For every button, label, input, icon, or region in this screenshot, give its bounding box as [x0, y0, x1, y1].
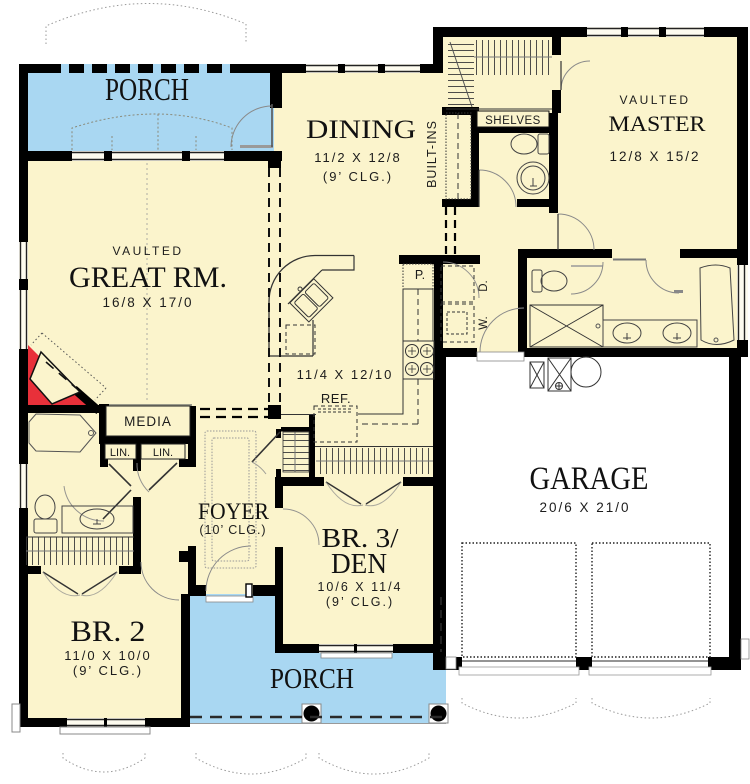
svg-text:SHELVES: SHELVES	[485, 115, 541, 127]
svg-text:20/6 X 21/0: 20/6 X 21/0	[539, 500, 630, 515]
svg-text:11/2 X 12/8: 11/2 X 12/8	[314, 150, 402, 165]
svg-text:MASTER: MASTER	[609, 111, 706, 136]
svg-text:D.: D.	[478, 280, 490, 292]
svg-text:GARAGE: GARAGE	[530, 461, 649, 497]
svg-text:MEDIA: MEDIA	[124, 414, 172, 429]
svg-text:(10’ CLG.): (10’ CLG.)	[199, 523, 266, 537]
svg-text:DINING: DINING	[306, 115, 416, 144]
svg-text:11/0 X 10/0: 11/0 X 10/0	[64, 648, 152, 663]
svg-text:REF.: REF.	[321, 391, 351, 406]
svg-text:PORCH: PORCH	[270, 663, 354, 695]
svg-text:16/8 X 17/0: 16/8 X 17/0	[102, 295, 193, 310]
svg-text:(9’ CLG.): (9’ CLG.)	[326, 595, 394, 609]
svg-text:(9’ CLG.): (9’ CLG.)	[323, 169, 393, 184]
svg-text:BR. 2: BR. 2	[71, 615, 146, 648]
svg-text:LIN.: LIN.	[110, 447, 130, 459]
svg-text:BUILT-INS: BUILT-INS	[425, 120, 439, 188]
svg-text:DEN: DEN	[331, 549, 387, 580]
svg-text:GREAT RM.: GREAT RM.	[69, 261, 227, 294]
svg-text:VAULTED: VAULTED	[112, 244, 183, 258]
svg-text:12/8 X 15/2: 12/8 X 15/2	[609, 149, 700, 164]
svg-text:W.: W.	[478, 316, 490, 329]
svg-text:VAULTED: VAULTED	[619, 93, 690, 107]
svg-text:(9’ CLG.): (9’ CLG.)	[73, 663, 143, 678]
svg-text:LIN.: LIN.	[153, 447, 173, 459]
svg-text:FOYER: FOYER	[198, 499, 270, 524]
svg-text:PORCH: PORCH	[105, 71, 189, 107]
svg-text:P.: P.	[415, 268, 425, 282]
svg-text:11/4 X 12/10: 11/4 X 12/10	[297, 367, 394, 382]
svg-text:10/6 X 11/4: 10/6 X 11/4	[317, 580, 402, 594]
